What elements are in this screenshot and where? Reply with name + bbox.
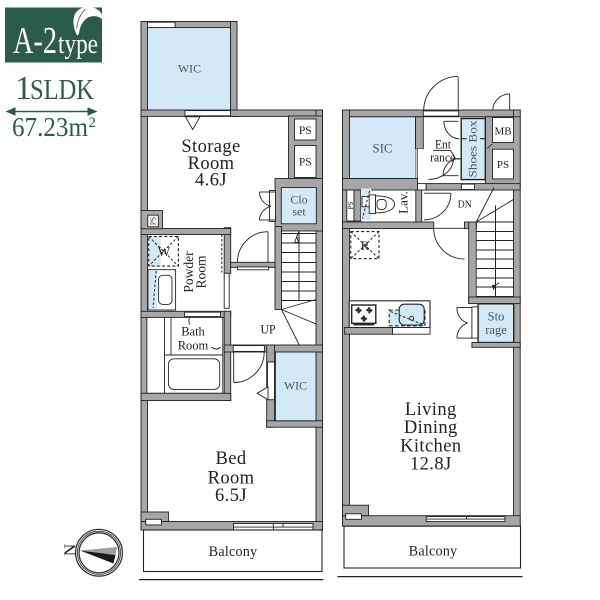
svg-text:67.23m: 67.23m <box>12 112 88 142</box>
svg-text:Sto: Sto <box>488 310 505 324</box>
svg-text:PS: PS <box>299 125 312 137</box>
svg-text:4.6J: 4.6J <box>195 171 227 191</box>
svg-text:DN: DN <box>458 199 472 211</box>
svg-text:N: N <box>60 544 79 556</box>
svg-text:Balcony: Balcony <box>409 544 458 560</box>
svg-text:rage: rage <box>485 323 507 337</box>
svg-text:Kitchen: Kitchen <box>400 437 461 457</box>
svg-text:PowderRoom: PowderRoom <box>181 251 208 293</box>
svg-text:W: W <box>158 244 171 259</box>
svg-text:Room: Room <box>178 339 209 353</box>
svg-text:PS: PS <box>497 159 509 171</box>
svg-text:2: 2 <box>89 115 97 131</box>
svg-text:UP: UP <box>261 323 276 337</box>
svg-text:Living: Living <box>405 400 457 420</box>
svg-text:Balcony: Balcony <box>209 544 258 560</box>
svg-text:Lav.: Lav. <box>396 191 411 214</box>
svg-text:Dining: Dining <box>404 418 458 438</box>
svg-text:MB: MB <box>494 126 511 138</box>
svg-text:A-2: A-2 <box>13 20 57 62</box>
svg-text:SLDK: SLDK <box>30 74 94 106</box>
svg-text:6.5J: 6.5J <box>215 486 247 506</box>
svg-text:SIC: SIC <box>372 141 392 156</box>
svg-text:12.8J: 12.8J <box>410 455 452 475</box>
svg-text:WIC: WIC <box>284 379 307 393</box>
svg-text:R: R <box>361 238 370 253</box>
svg-text:Bath: Bath <box>181 325 205 339</box>
svg-text:PS: PS <box>299 157 312 169</box>
svg-text:Bed: Bed <box>215 449 246 469</box>
svg-text:Shoes Box: Shoes Box <box>466 121 480 178</box>
svg-text:PS: PS <box>149 217 158 225</box>
svg-text:set: set <box>292 204 306 218</box>
svg-text:WIC: WIC <box>178 62 201 76</box>
